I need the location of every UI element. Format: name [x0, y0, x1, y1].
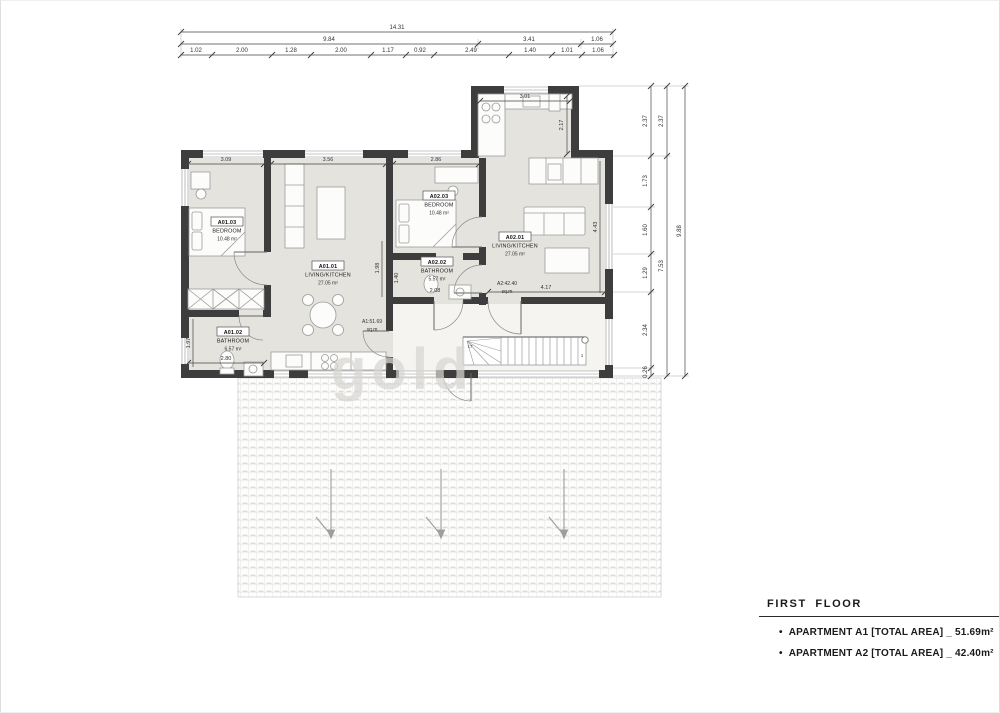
total-unit: sq.m — [502, 289, 513, 295]
dim-label: 2.00 — [335, 48, 347, 54]
dim-label: 7.53 — [659, 260, 665, 272]
legend-item-a1: • APARTMENT A1 [TOTAL AREA] _ 51.69m² — [759, 627, 999, 638]
wardrobe — [188, 289, 264, 309]
dim-label: 1.97 — [186, 338, 192, 349]
dim-label: 2.37 — [659, 115, 665, 127]
dim-label: 2.00 — [236, 48, 248, 54]
window — [203, 150, 263, 158]
room-name: BATHROOM — [217, 339, 250, 345]
bullet-icon: • — [779, 648, 783, 659]
dim-label: 1.06 — [592, 48, 604, 54]
room-code: A01.02 — [224, 330, 243, 336]
table — [317, 187, 345, 239]
toilet — [220, 351, 234, 374]
legend-item-label: APARTMENT A1 [TOTAL AREA] _ 51.69m² — [789, 627, 994, 638]
cabinet — [285, 164, 304, 248]
dim-label: 1.60 — [643, 224, 649, 236]
dim-label: 1.98 — [375, 263, 381, 274]
window — [305, 150, 363, 158]
terrace-hatch — [238, 378, 661, 597]
terrace — [238, 378, 661, 597]
dim-label: 3.09 — [221, 157, 232, 163]
room-name: BATHROOM — [421, 269, 454, 275]
glazing — [274, 371, 289, 377]
window — [504, 86, 548, 94]
dim-label: 1.02 — [190, 48, 202, 54]
dim-label: 9.88 — [677, 225, 683, 237]
room-code: A02.02 — [428, 260, 447, 266]
dim-label: 1.01 — [561, 48, 573, 54]
dim-label: 4.43 — [593, 222, 599, 233]
dim-label: 1.06 — [591, 37, 603, 43]
room-name: LIVING/KITCHEN — [492, 244, 538, 250]
room-code: A02.03 — [430, 194, 449, 200]
window — [605, 319, 613, 365]
room-area: 6.57 m² — [225, 347, 242, 353]
dim-label: 2.34 — [643, 324, 649, 336]
dim-label: 0.92 — [414, 48, 426, 54]
staircase: 17 1 — [463, 337, 588, 365]
dim-label: 3.41 — [523, 37, 535, 43]
dim-label: 1.40 — [394, 273, 400, 284]
dim-label: 4.17 — [541, 285, 552, 291]
dim-label: 2.86 — [431, 157, 442, 163]
dim-label: 1.17 — [382, 48, 394, 54]
dim-label: 3.56 — [323, 157, 334, 163]
watermark-text: gold — [331, 337, 473, 402]
window — [181, 169, 189, 206]
dim-label: 0.26 — [643, 366, 649, 378]
floor-plan-page: 17 1 — [0, 0, 1000, 713]
room-code: A01.03 — [218, 220, 237, 226]
room-code: A02.01 — [506, 235, 525, 241]
legend: FIRST FLOOR • APARTMENT A1 [TOTAL AREA] … — [759, 598, 999, 659]
dim-label: 3.01 — [520, 94, 531, 100]
dim-label: 1.40 — [524, 48, 536, 54]
room-code: A01.01 — [319, 264, 338, 270]
dim-label: 2.37 — [643, 115, 649, 127]
dim-label: 9.84 — [323, 37, 335, 43]
total-value: A1:51.69 — [362, 319, 382, 325]
coffee-table — [545, 248, 589, 273]
room-area: 10.48 m² — [429, 211, 449, 217]
legend-item-a2: • APARTMENT A2 [TOTAL AREA] _ 42.40m² — [759, 648, 999, 659]
room-area: 10.48 m² — [217, 237, 237, 243]
room-area: 27.05 m² — [318, 281, 338, 287]
total-unit: sq.m — [367, 327, 378, 333]
sink — [244, 362, 263, 376]
room-area: 5.57 m² — [429, 277, 446, 283]
window — [605, 204, 613, 269]
stair-step-number: 1 — [581, 353, 584, 358]
room-name: LIVING/KITCHEN — [305, 273, 351, 279]
room-name: BEDROOM — [424, 203, 454, 209]
room-area: 27.05 m² — [505, 252, 525, 258]
sink — [449, 285, 471, 299]
sofa — [524, 207, 585, 235]
legend-item-label: APARTMENT A2 [TOTAL AREA] _ 42.40m² — [789, 648, 994, 659]
dim-label: 2.17 — [559, 120, 565, 131]
total-value: A2:42.40 — [497, 281, 517, 287]
kitchen-counter — [529, 158, 598, 184]
dim-label: 1.29 — [643, 267, 649, 279]
dim-label: 2.49 — [465, 48, 477, 54]
legend-title: FIRST FLOOR — [759, 598, 999, 610]
room-name: BEDROOM — [212, 229, 242, 235]
dim-label: 1.28 — [285, 48, 297, 54]
stair-post — [582, 337, 588, 343]
dim-label: 2.08 — [430, 288, 441, 294]
glazing — [478, 371, 599, 377]
bullet-icon: • — [779, 627, 783, 638]
dim-label: 2.80 — [221, 356, 232, 362]
dim-label: 1.73 — [643, 175, 649, 187]
dim-label: 14.31 — [389, 25, 405, 31]
legend-divider — [759, 616, 999, 617]
